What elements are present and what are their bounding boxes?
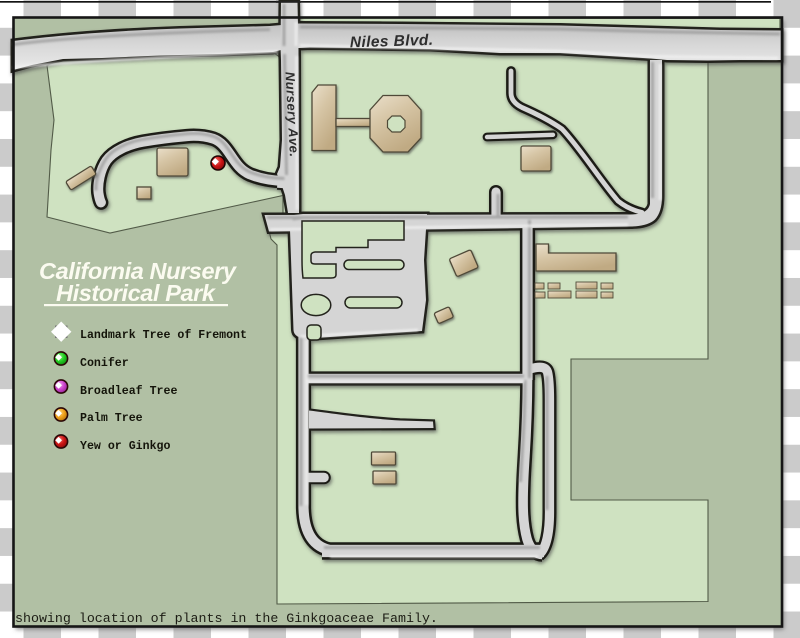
svg-text:showing location of plants in: showing location of plants in the Ginkgo… (15, 611, 438, 626)
svg-text:Landmark Tree of Fremont: Landmark Tree of Fremont (80, 329, 247, 342)
svg-text:Palm Tree: Palm Tree (80, 412, 143, 425)
svg-text:Conifer: Conifer (80, 357, 129, 370)
svg-text:Yew or Ginkgo: Yew or Ginkgo (80, 440, 170, 453)
svg-text:Historical Park: Historical Park (56, 280, 217, 306)
svg-text:Broadleaf Tree: Broadleaf Tree (80, 385, 177, 398)
svg-text:Niles Blvd.: Niles Blvd. (350, 32, 434, 52)
